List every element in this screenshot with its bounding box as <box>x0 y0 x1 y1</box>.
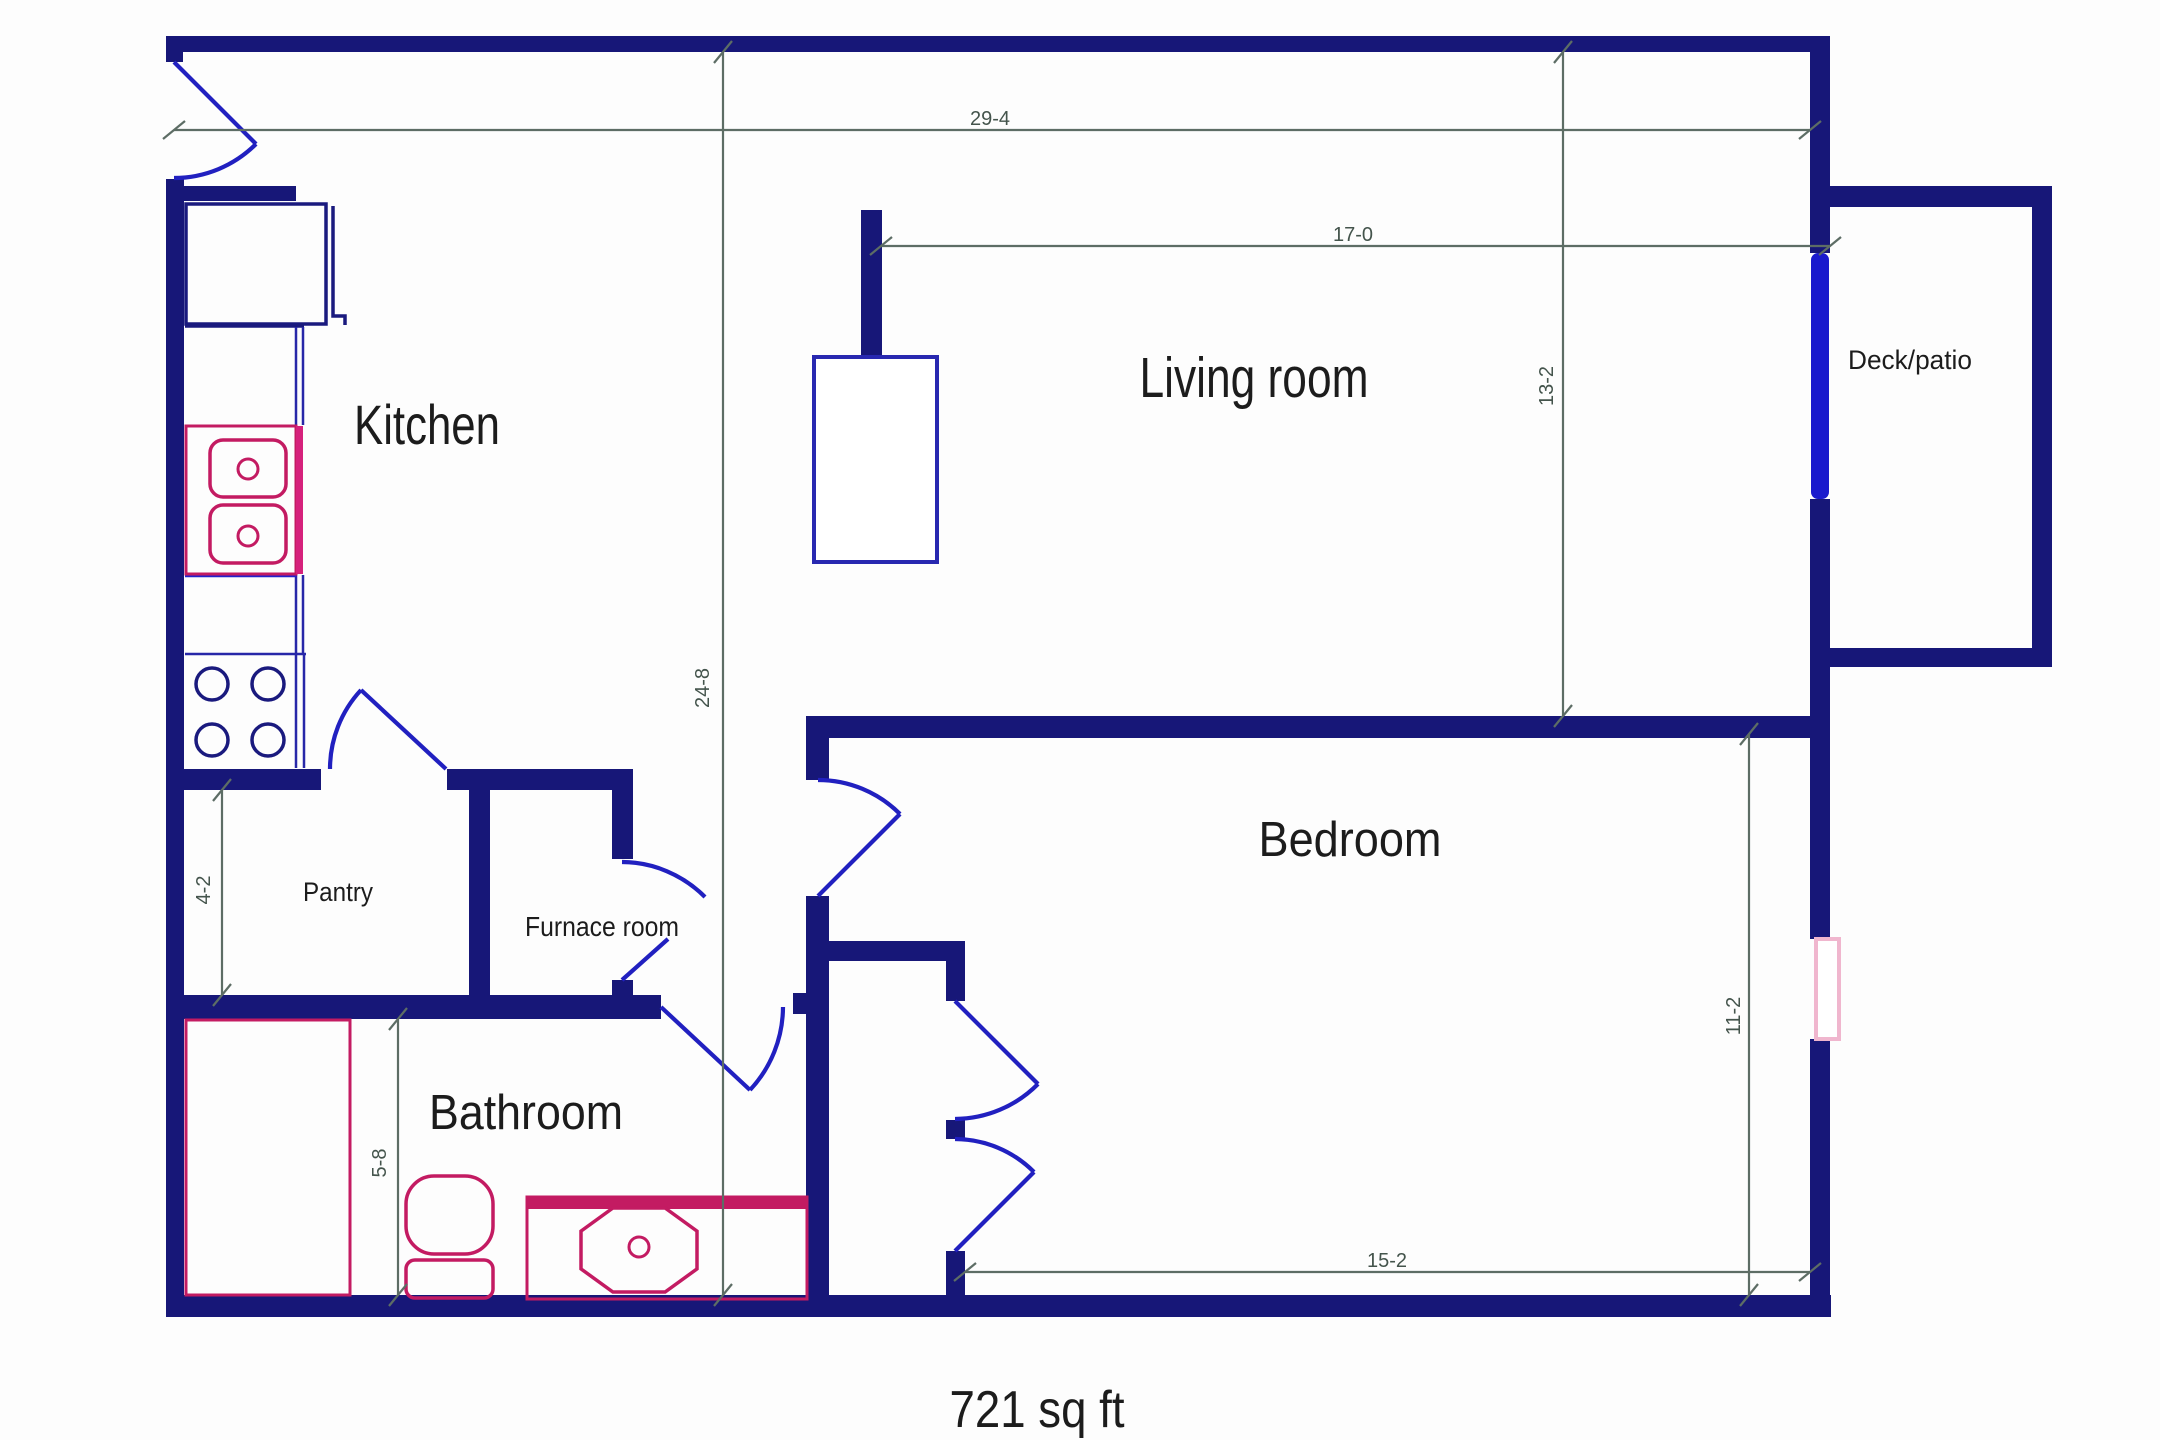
svg-text:Furnace room: Furnace room <box>525 911 679 942</box>
svg-text:Deck/patio: Deck/patio <box>1848 345 1972 375</box>
svg-text:Living room: Living room <box>1140 346 1369 410</box>
svg-text:Bedroom: Bedroom <box>1259 813 1442 867</box>
svg-text:721 sq ft: 721 sq ft <box>950 1381 1125 1439</box>
svg-text:Kitchen: Kitchen <box>354 393 500 456</box>
svg-text:Pantry: Pantry <box>303 877 373 907</box>
svg-text:29-4: 29-4 <box>970 108 1010 130</box>
svg-text:Bathroom: Bathroom <box>429 1086 623 1140</box>
svg-text:15-2: 15-2 <box>1367 1250 1407 1272</box>
svg-text:11-2: 11-2 <box>1723 997 1745 1036</box>
svg-text:17-0: 17-0 <box>1333 224 1373 246</box>
svg-text:4-2: 4-2 <box>193 876 215 905</box>
svg-text:5-8: 5-8 <box>369 1149 391 1178</box>
svg-text:13-2: 13-2 <box>1536 366 1558 406</box>
svg-text:24-8: 24-8 <box>692 668 714 708</box>
